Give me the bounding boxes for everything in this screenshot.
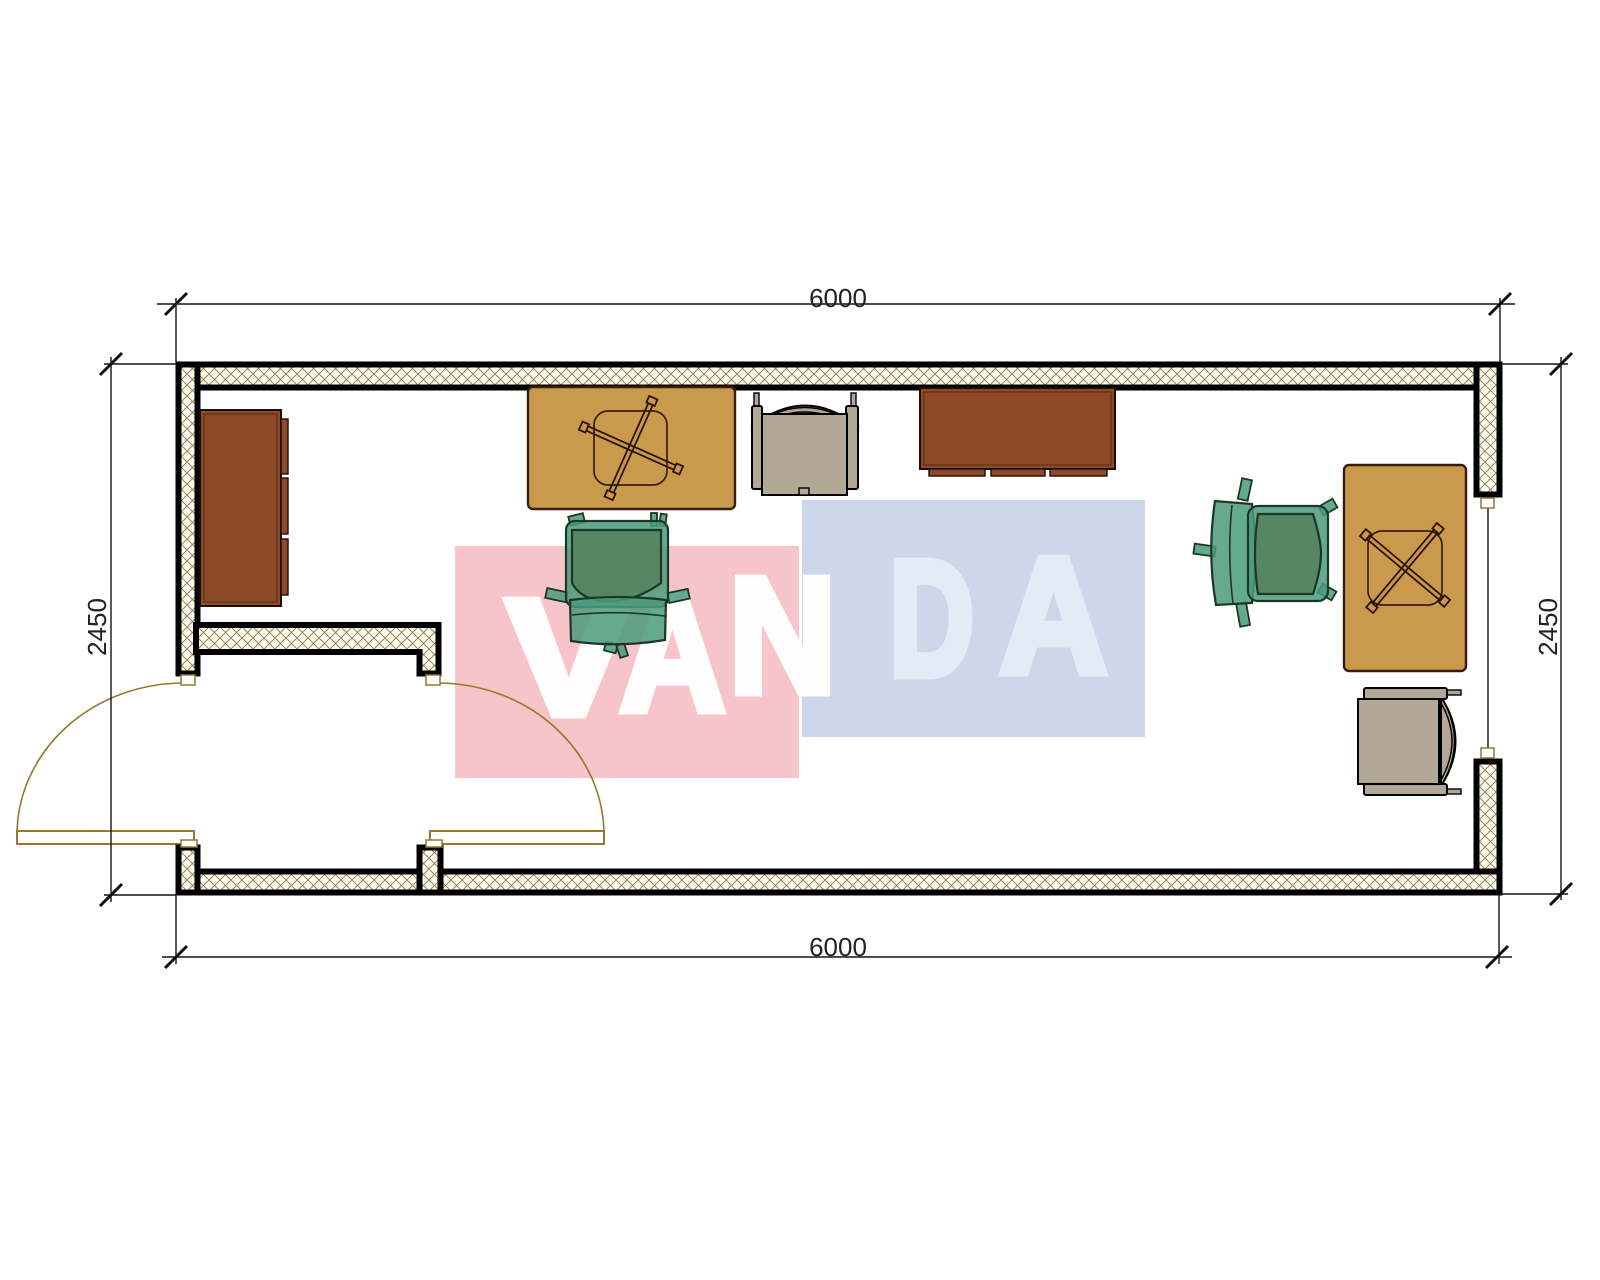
svg-text:6000: 6000 xyxy=(809,932,867,962)
svg-text:N: N xyxy=(729,544,836,727)
svg-text:6000: 6000 xyxy=(809,283,867,313)
svg-text:D: D xyxy=(889,527,974,710)
svg-text:2450: 2450 xyxy=(1533,598,1563,656)
svg-text:A: A xyxy=(1000,524,1107,707)
svg-text:2450: 2450 xyxy=(82,598,112,656)
